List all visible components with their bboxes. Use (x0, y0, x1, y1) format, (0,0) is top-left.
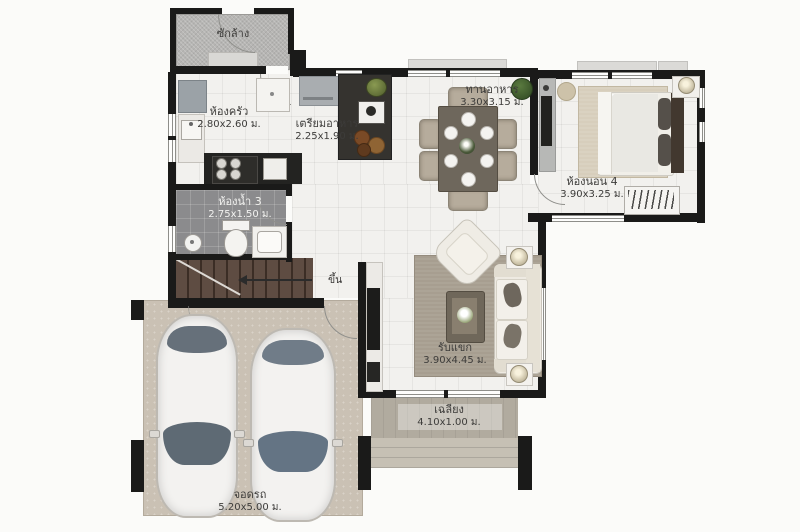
window-bedroom-bottom (552, 215, 624, 222)
car-mirror (149, 430, 160, 438)
wall-laundry-left (170, 8, 176, 74)
cabinet-handle (270, 92, 274, 96)
wall-living-left (358, 262, 366, 398)
room-name: ทานอาหาร (460, 83, 523, 96)
garage-column (131, 300, 144, 320)
pillow (658, 98, 671, 130)
stairs-up-text: ขึ้น (328, 274, 342, 287)
floor-plan: ซักล้าง ห้องครัว 2.80x2.60 ม. เตรียมอาหา… (0, 0, 800, 532)
plate-icon (444, 154, 458, 168)
room-dims: 3.30x3.15 ม. (460, 97, 523, 109)
plate-icon (480, 126, 494, 140)
room-label-laundry: ซักล้าง (217, 27, 249, 40)
car-rear-window (262, 340, 324, 365)
toilet-icon (224, 229, 248, 257)
window-kitchen (168, 114, 176, 136)
window-dining (450, 70, 500, 77)
window-bathroom (168, 226, 176, 252)
room-name: รับแขก (423, 341, 486, 354)
car-mirror (332, 439, 343, 447)
media-box (367, 362, 380, 382)
room-name: จอดรถ (218, 488, 281, 501)
room-name: เฉลียง (417, 403, 480, 416)
room-dims: 2.75x1.50 ม. (208, 209, 271, 221)
burner-icon (230, 158, 241, 169)
stairs-arrow-head (238, 275, 247, 285)
car-windshield (163, 422, 230, 465)
room-label-dining: ทานอาหาร 3.30x3.15 ม. (460, 83, 523, 109)
room-dims: 5.20x5.00 ม. (218, 502, 281, 514)
burner-icon (216, 158, 227, 169)
sofa-back (526, 264, 540, 372)
speaker-icon (543, 85, 549, 91)
car-mirror (243, 439, 254, 447)
room-label-living: รับแขก 3.90x4.45 ม. (423, 341, 486, 367)
lamp-icon (510, 248, 528, 266)
window-bedroom-top (612, 72, 652, 79)
living-tv (367, 288, 380, 350)
plate-icon (444, 126, 458, 140)
room-label-terrace: เฉลียง 4.10x1.00 ม. (417, 403, 480, 429)
room-dims: 2.25x1.90 ม. (295, 131, 358, 143)
room-label-bath3: ห้องน้ำ 3 2.75x1.50 ม. (208, 195, 271, 221)
vanity-sink (257, 231, 282, 253)
window-bedroom-top (572, 72, 608, 79)
room-dims: 3.90x3.25 ม. (560, 189, 623, 201)
room-name: ห้องครัว (197, 105, 260, 118)
window-dining (408, 70, 446, 77)
room-label-garage: จอดรถ 5.20x5.00 ม. (218, 488, 281, 514)
wall-main-left (168, 72, 176, 308)
car-rear-window (167, 326, 226, 353)
basket (557, 82, 576, 101)
window-bedroom-right (699, 122, 705, 142)
lamp-icon (678, 77, 695, 94)
food-basket (357, 143, 371, 157)
appliance-handle (303, 97, 333, 100)
room-name: ห้องน้ำ 3 (208, 195, 271, 208)
plate-icon (461, 112, 476, 127)
garage-column (131, 440, 144, 492)
wall-laundry-right (288, 8, 294, 54)
burner-icon (216, 169, 227, 180)
headboard (671, 93, 684, 173)
table-flowers (457, 307, 473, 323)
terrace-column (358, 436, 371, 490)
wardrobe-hatch (628, 190, 674, 209)
terrace-steps (371, 438, 518, 468)
lamp-icon (510, 365, 528, 383)
car-windshield (258, 431, 329, 472)
faucet-icon (189, 122, 193, 126)
pillow (658, 134, 671, 166)
drain-icon (190, 240, 194, 244)
terrace-column (518, 436, 532, 490)
wall-bath-top (170, 184, 292, 190)
burner-icon (230, 169, 241, 180)
bedroom-tv (541, 96, 552, 146)
room-name: ซักล้าง (217, 27, 249, 40)
prep-appliance (299, 76, 339, 106)
door-gap-kitchen (266, 66, 288, 74)
salad-bowl (366, 78, 387, 97)
room-label-bedroom4: ห้องนอน 4 3.90x3.25 ม. (560, 175, 623, 201)
car-mirror (234, 430, 245, 438)
blanket-fold (598, 92, 612, 174)
room-label-prep: เตรียมอาหาร 2.25x1.90 ม. (295, 117, 358, 143)
room-dims: 3.90x4.45 ม. (423, 355, 486, 367)
counter-sink (263, 158, 287, 180)
sliding-door-terrace (448, 390, 500, 398)
centerpiece-flowers (459, 138, 475, 154)
stairs-up-label: ขึ้น (328, 274, 342, 287)
stairs-arrow-line (246, 279, 312, 281)
sliding-door-terrace (396, 390, 444, 398)
room-dims: 2.80x2.60 ม. (197, 119, 260, 131)
wall-laundry-kitchen (170, 66, 266, 74)
room-name: เตรียมอาหาร (295, 117, 358, 130)
room-dims: 4.10x1.00 ม. (417, 417, 480, 429)
plate-icon (480, 154, 494, 168)
plate-icon (461, 172, 476, 187)
window-kitchen (168, 140, 176, 162)
room-name: ห้องนอน 4 (560, 175, 623, 188)
room-label-kitchen: ห้องครัว 2.80x2.60 ม. (197, 105, 260, 131)
sink-drain-icon (366, 106, 376, 116)
